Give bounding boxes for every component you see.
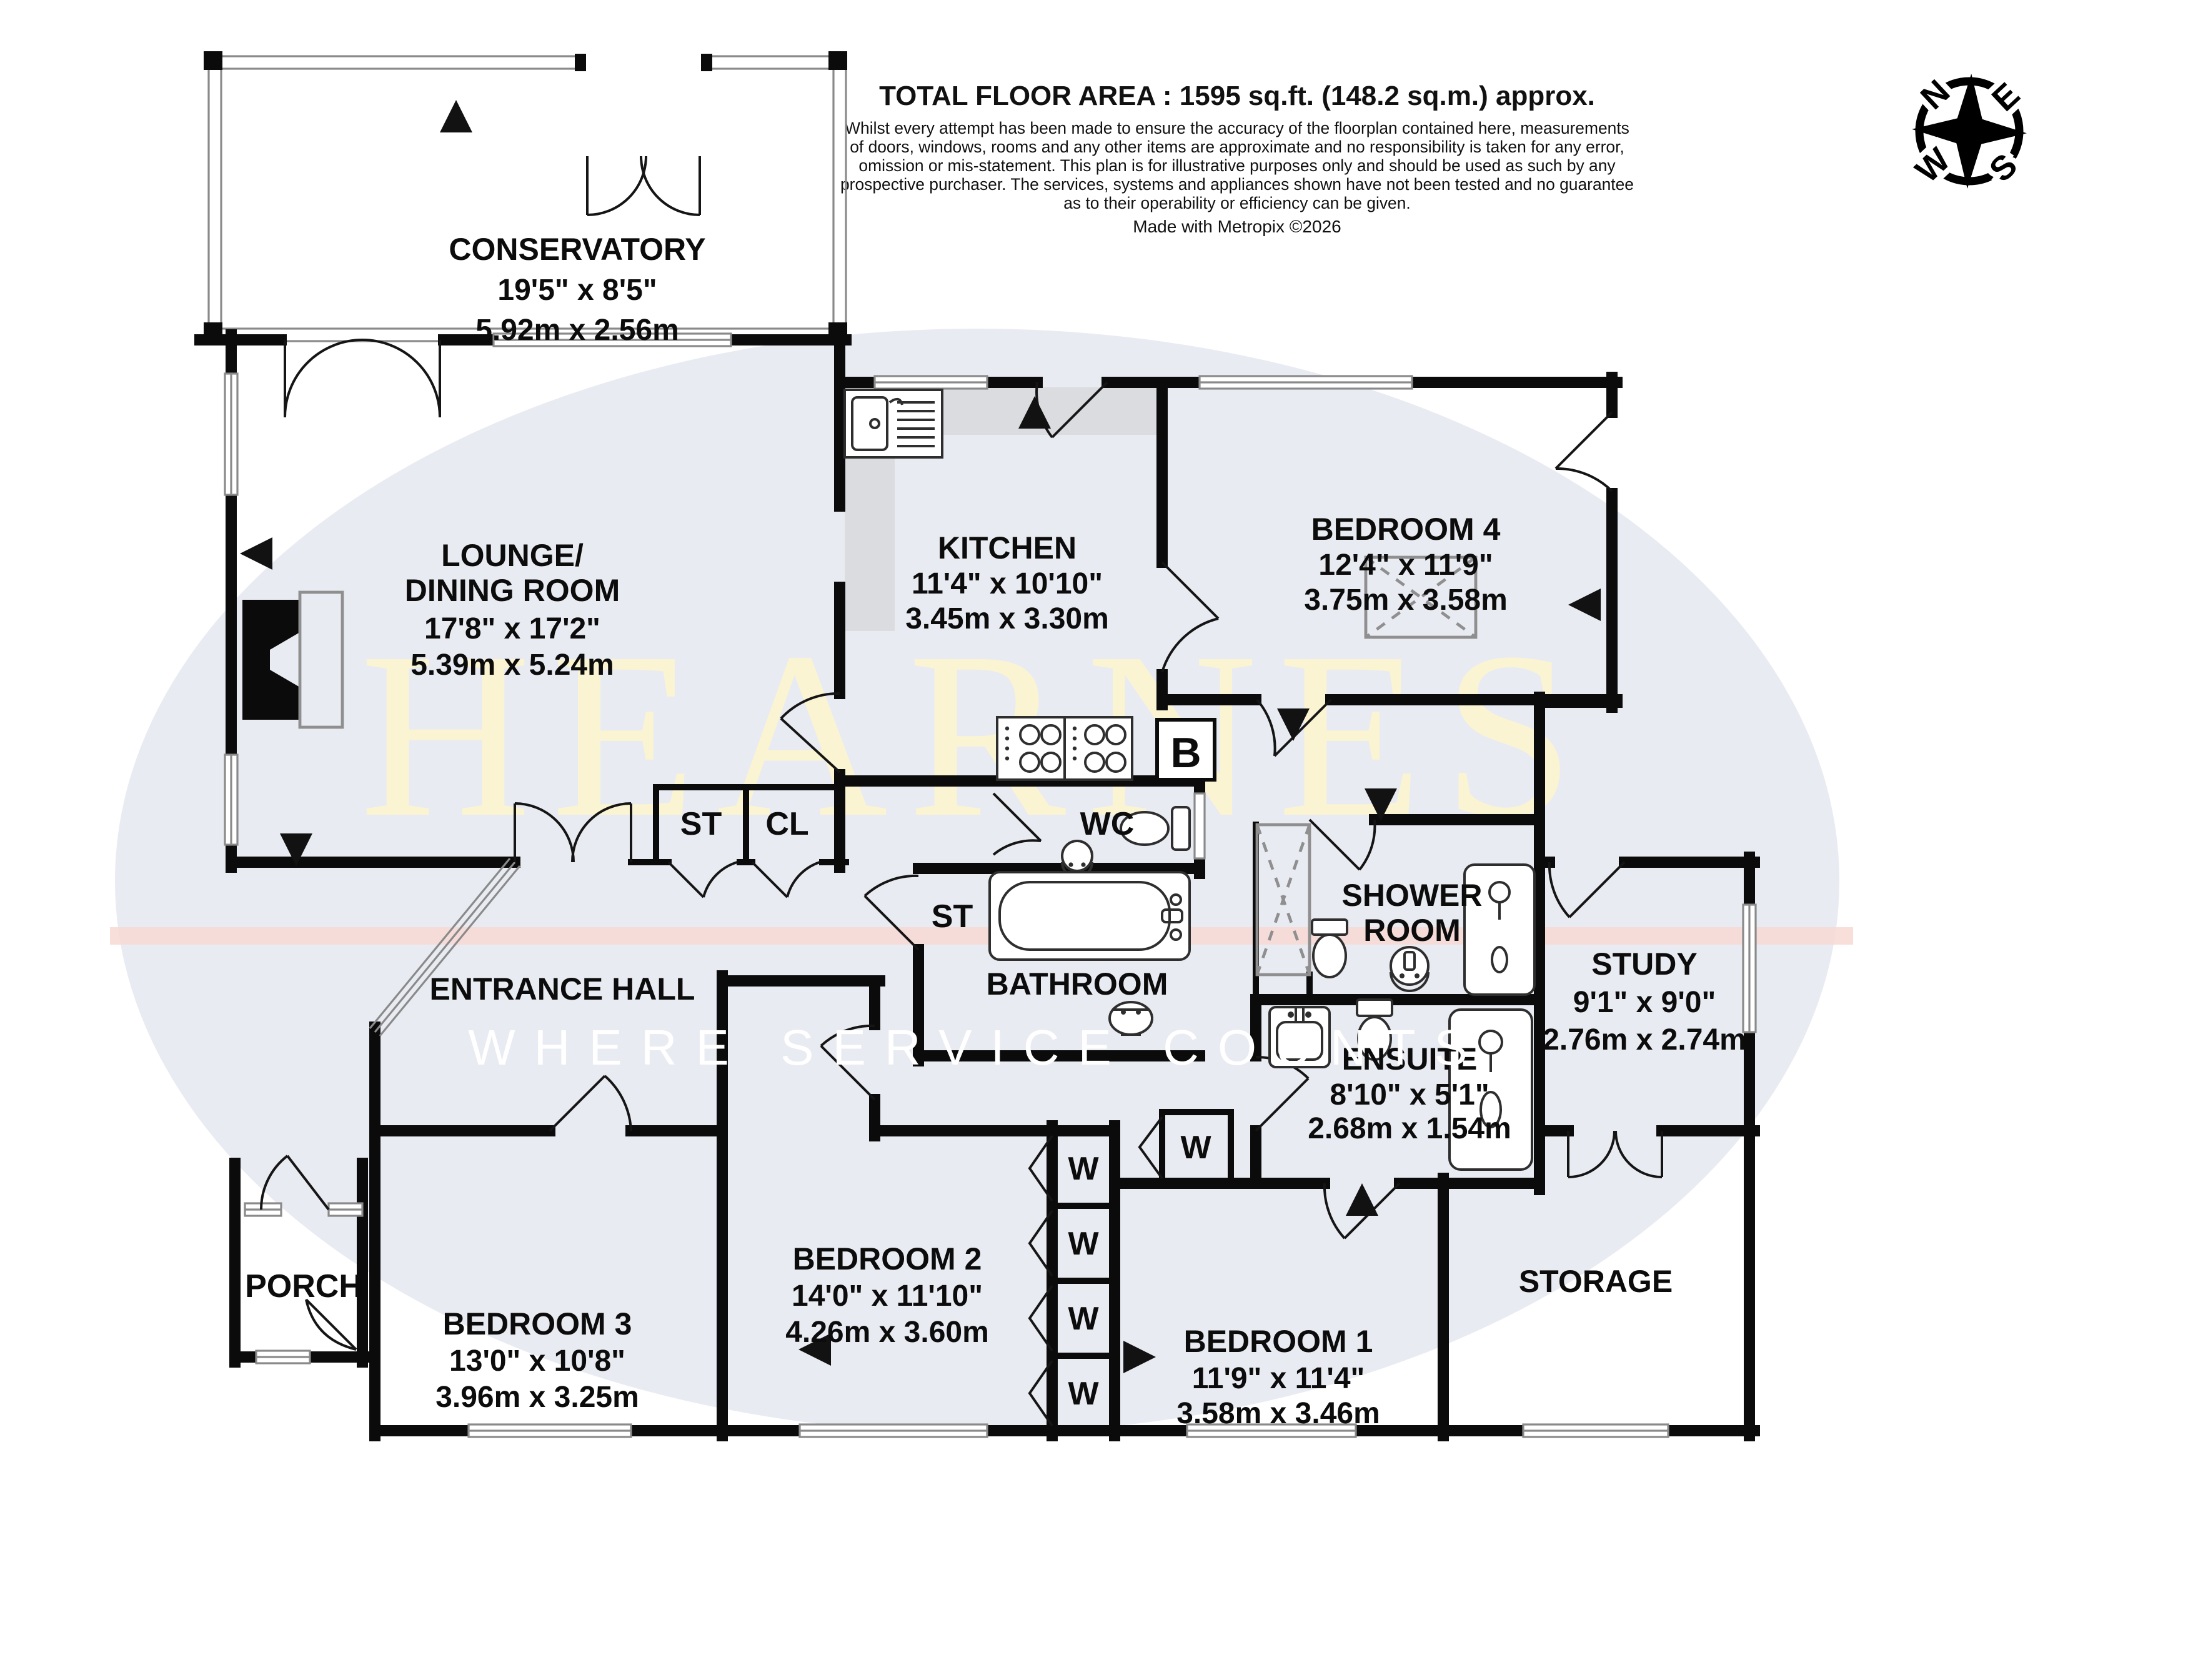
room-label-bathroom: BATHROOM	[987, 967, 1168, 1002]
room-dims-ft-kitchen: 11'4" x 10'10"	[912, 567, 1103, 600]
disclaimer-line-1: Whilst every attempt has been made to en…	[845, 119, 1629, 137]
disclaimer-line-5: as to their operability or efficiency ca…	[1063, 194, 1411, 212]
room-label-study: STUDY	[1591, 947, 1697, 982]
room-label-entrance-hall: ENTRANCE HALL	[430, 972, 695, 1007]
room-label-bedroom1: BEDROOM 1	[1184, 1324, 1373, 1359]
room-label-lounge-1: LOUNGE/	[441, 538, 584, 573]
room-dims-m-bedroom2: 4.26m x 3.60m	[785, 1316, 989, 1349]
hob-icon	[997, 717, 1132, 780]
disclaimer-line-3: omission or mis-statement. This plan is …	[858, 156, 1616, 175]
room-dims-ft-bedroom4: 12'4" x 11'9"	[1318, 549, 1493, 582]
room-label-lounge-2: DINING ROOM	[405, 573, 620, 608]
wardrobe-label: W	[1068, 1376, 1099, 1412]
room-label-storage: STORAGE	[1519, 1264, 1673, 1299]
room-dims-ft-bedroom1: 11'9" x 11'4"	[1192, 1362, 1365, 1395]
room-dims-ft-bedroom2: 14'0" x 11'10"	[792, 1280, 983, 1313]
watermark-tagline: WHERE SERVICE COUNTS	[468, 1020, 1486, 1075]
room-label-hall-cl: CL	[765, 806, 808, 842]
room-dims-m-study: 2.76m x 2.74m	[1543, 1023, 1746, 1056]
header: TOTAL FLOOR AREA : 1595 sq.ft. (148.2 sq…	[840, 81, 1634, 236]
compass-w: W	[1908, 141, 1957, 190]
room-dims-m-lounge: 5.39m x 5.24m	[410, 649, 614, 682]
room-dims-ft-conservatory: 19'5" x 8'5"	[497, 274, 657, 307]
room-dims-m-kitchen: 3.45m x 3.30m	[905, 602, 1109, 635]
room-label-kitchen: KITCHEN	[938, 530, 1077, 565]
wardrobe-label: W	[1068, 1151, 1099, 1187]
entrance-arrow-up	[440, 100, 472, 132]
room-dims-ft-lounge: 17'8" x 17'2"	[424, 612, 600, 645]
wardrobe-label: W	[1180, 1130, 1211, 1166]
watermark-stripe	[110, 927, 1853, 945]
entrance-arrow-left	[240, 537, 272, 570]
room-dims-ft-study: 9'1" x 9'0"	[1573, 986, 1716, 1019]
room-dims-m-conservatory: 5.92m x 2.56m	[475, 314, 679, 347]
room-label-shower-2: ROOM	[1363, 913, 1461, 948]
room-label-bathroom-st: ST	[932, 898, 973, 935]
room-dims-m-bedroom1: 3.58m x 3.46m	[1176, 1397, 1380, 1430]
room-label-hall-st: ST	[680, 806, 722, 842]
room-label-wc: WC	[1080, 806, 1135, 842]
shower-room-toilet-icon	[1312, 920, 1347, 977]
disclaimer-line-2: of doors, windows, rooms and any other i…	[850, 137, 1624, 156]
room-dims-m-bedroom3: 3.96m x 3.25m	[435, 1381, 639, 1414]
kitchen-sink-icon	[845, 390, 942, 457]
room-dims-m-ensuite: 2.68m x 1.54m	[1308, 1112, 1511, 1145]
room-label-porch: PORCH	[245, 1268, 362, 1305]
room-label-bedroom2: BEDROOM 2	[793, 1241, 982, 1276]
room-label-shower-1: SHOWER	[1342, 878, 1483, 913]
boiler-box: B	[1157, 720, 1215, 780]
room-label-bedroom4: BEDROOM 4	[1311, 512, 1501, 547]
wardrobe-label: W	[1068, 1226, 1099, 1262]
room-label-conservatory: CONSERVATORY	[449, 232, 705, 267]
room-dims-ft-bedroom3: 13'0" x 10'8"	[449, 1344, 625, 1378]
bath-icon	[990, 872, 1190, 960]
room-dims-ft-ensuite: 8'10" x 5'1"	[1330, 1078, 1489, 1111]
total-floor-area-title: TOTAL FLOOR AREA : 1595 sq.ft. (148.2 sq…	[879, 81, 1595, 111]
compass-rose-icon: N E S W	[1854, 16, 2084, 246]
disclaimer-line-4: prospective purchaser. The services, sys…	[840, 175, 1634, 194]
credit-line: Made with Metropix ©2026	[1133, 217, 1341, 236]
room-dims-m-bedroom4: 3.75m x 3.58m	[1304, 584, 1508, 617]
boiler-label: B	[1170, 729, 1201, 777]
shower-room-basin-icon	[1391, 947, 1428, 991]
room-label-bedroom3: BEDROOM 3	[443, 1306, 632, 1341]
wardrobe-label: W	[1068, 1301, 1099, 1337]
floorplan-canvas: HEARNES TOTAL FLOOR AREA : 1595 sq.ft. (…	[0, 0, 2193, 1680]
